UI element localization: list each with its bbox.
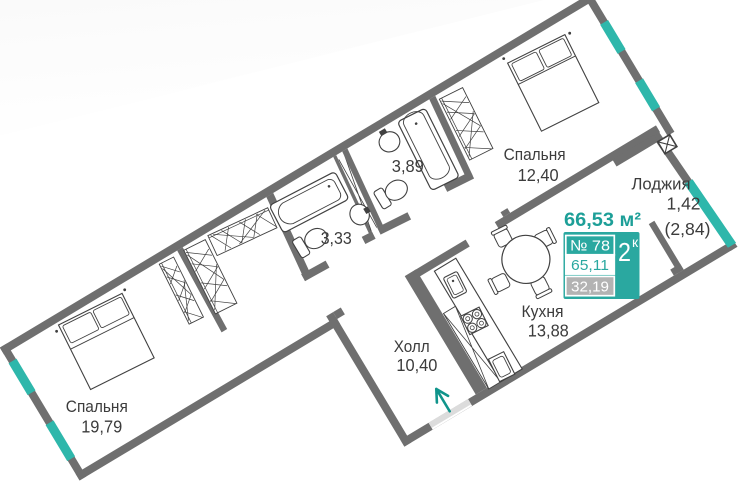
svg-text:Холл: Холл (394, 338, 430, 356)
svg-text:к: к (632, 234, 639, 250)
svg-text:1,42: 1,42 (667, 194, 701, 214)
svg-text:10,40: 10,40 (396, 355, 437, 375)
svg-text:13,88: 13,88 (528, 321, 569, 341)
svg-text:(2,84): (2,84) (665, 219, 711, 239)
svg-text:Кухня: Кухня (522, 303, 564, 321)
svg-text:3,89: 3,89 (392, 156, 424, 176)
svg-text:Лоджия: Лоджия (632, 176, 691, 194)
svg-text:32,19: 32,19 (571, 278, 609, 295)
svg-text:65,11: 65,11 (571, 257, 609, 274)
svg-text:2: 2 (618, 237, 631, 267)
svg-text:3,33: 3,33 (321, 228, 352, 248)
svg-text:№ 78: № 78 (570, 238, 610, 255)
svg-text:12,40: 12,40 (518, 165, 559, 185)
svg-text:Спальня: Спальня (66, 398, 128, 416)
svg-text:Спальня: Спальня (504, 146, 566, 164)
svg-text:19,79: 19,79 (81, 417, 122, 437)
svg-text:66,53 м²: 66,53 м² (564, 209, 642, 231)
